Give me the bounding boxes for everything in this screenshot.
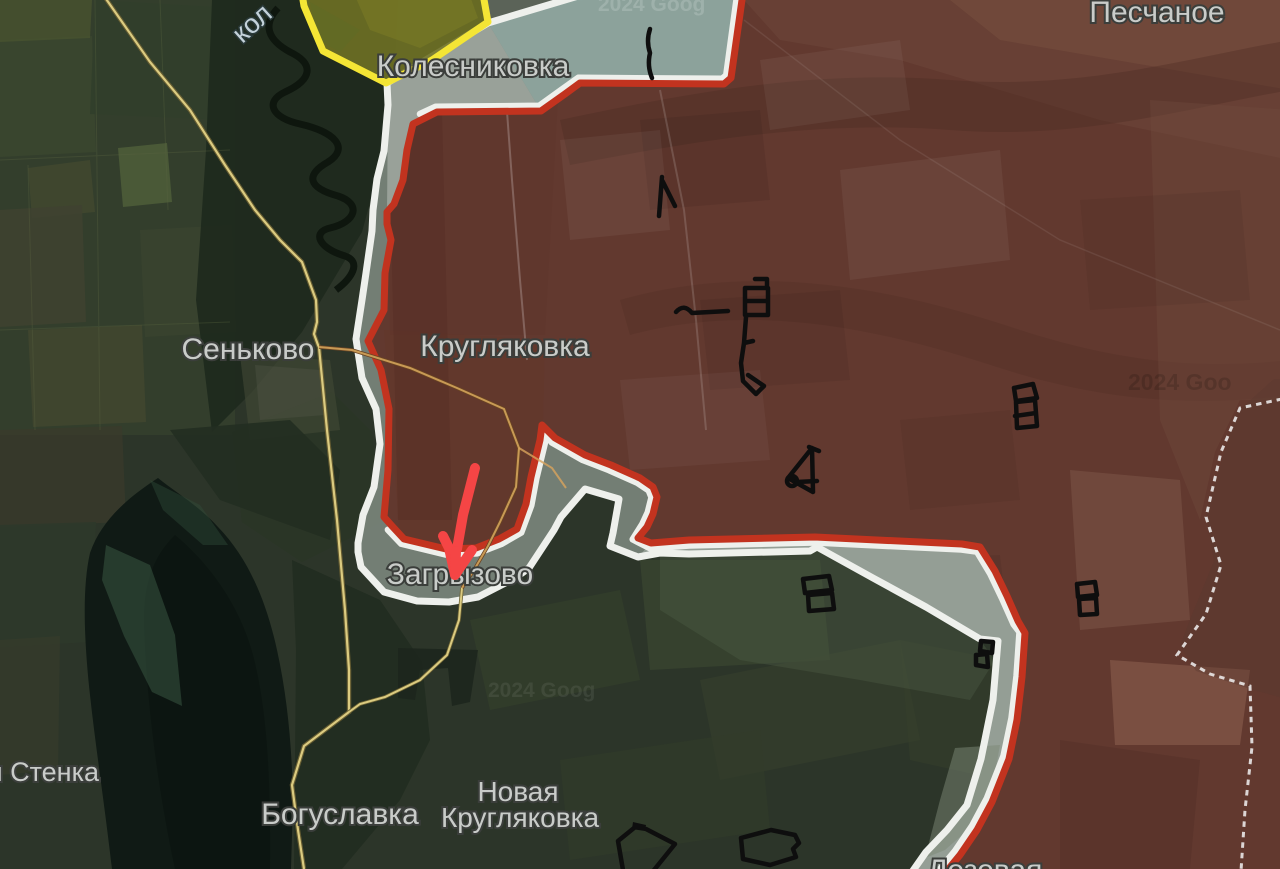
svg-text:2024 Goo: 2024 Goo — [1128, 369, 1232, 395]
svg-text:2024 Goog: 2024 Goog — [488, 679, 595, 702]
svg-text:Кругляковка: Кругляковка — [441, 802, 600, 833]
svg-text:2024 Goog: 2024 Goog — [598, 0, 705, 16]
svg-text:Лозовая: Лозовая — [928, 854, 1043, 869]
svg-text:я Стенка: я Стенка — [0, 757, 100, 787]
svg-text:Колесниковка: Колесниковка — [377, 50, 570, 83]
svg-text:Сеньково: Сеньково — [182, 333, 315, 366]
svg-text:Кругляковка: Кругляковка — [420, 330, 590, 363]
svg-text:Богуславка: Богуславка — [261, 798, 419, 831]
svg-text:Песчаное: Песчаное — [1089, 0, 1224, 29]
